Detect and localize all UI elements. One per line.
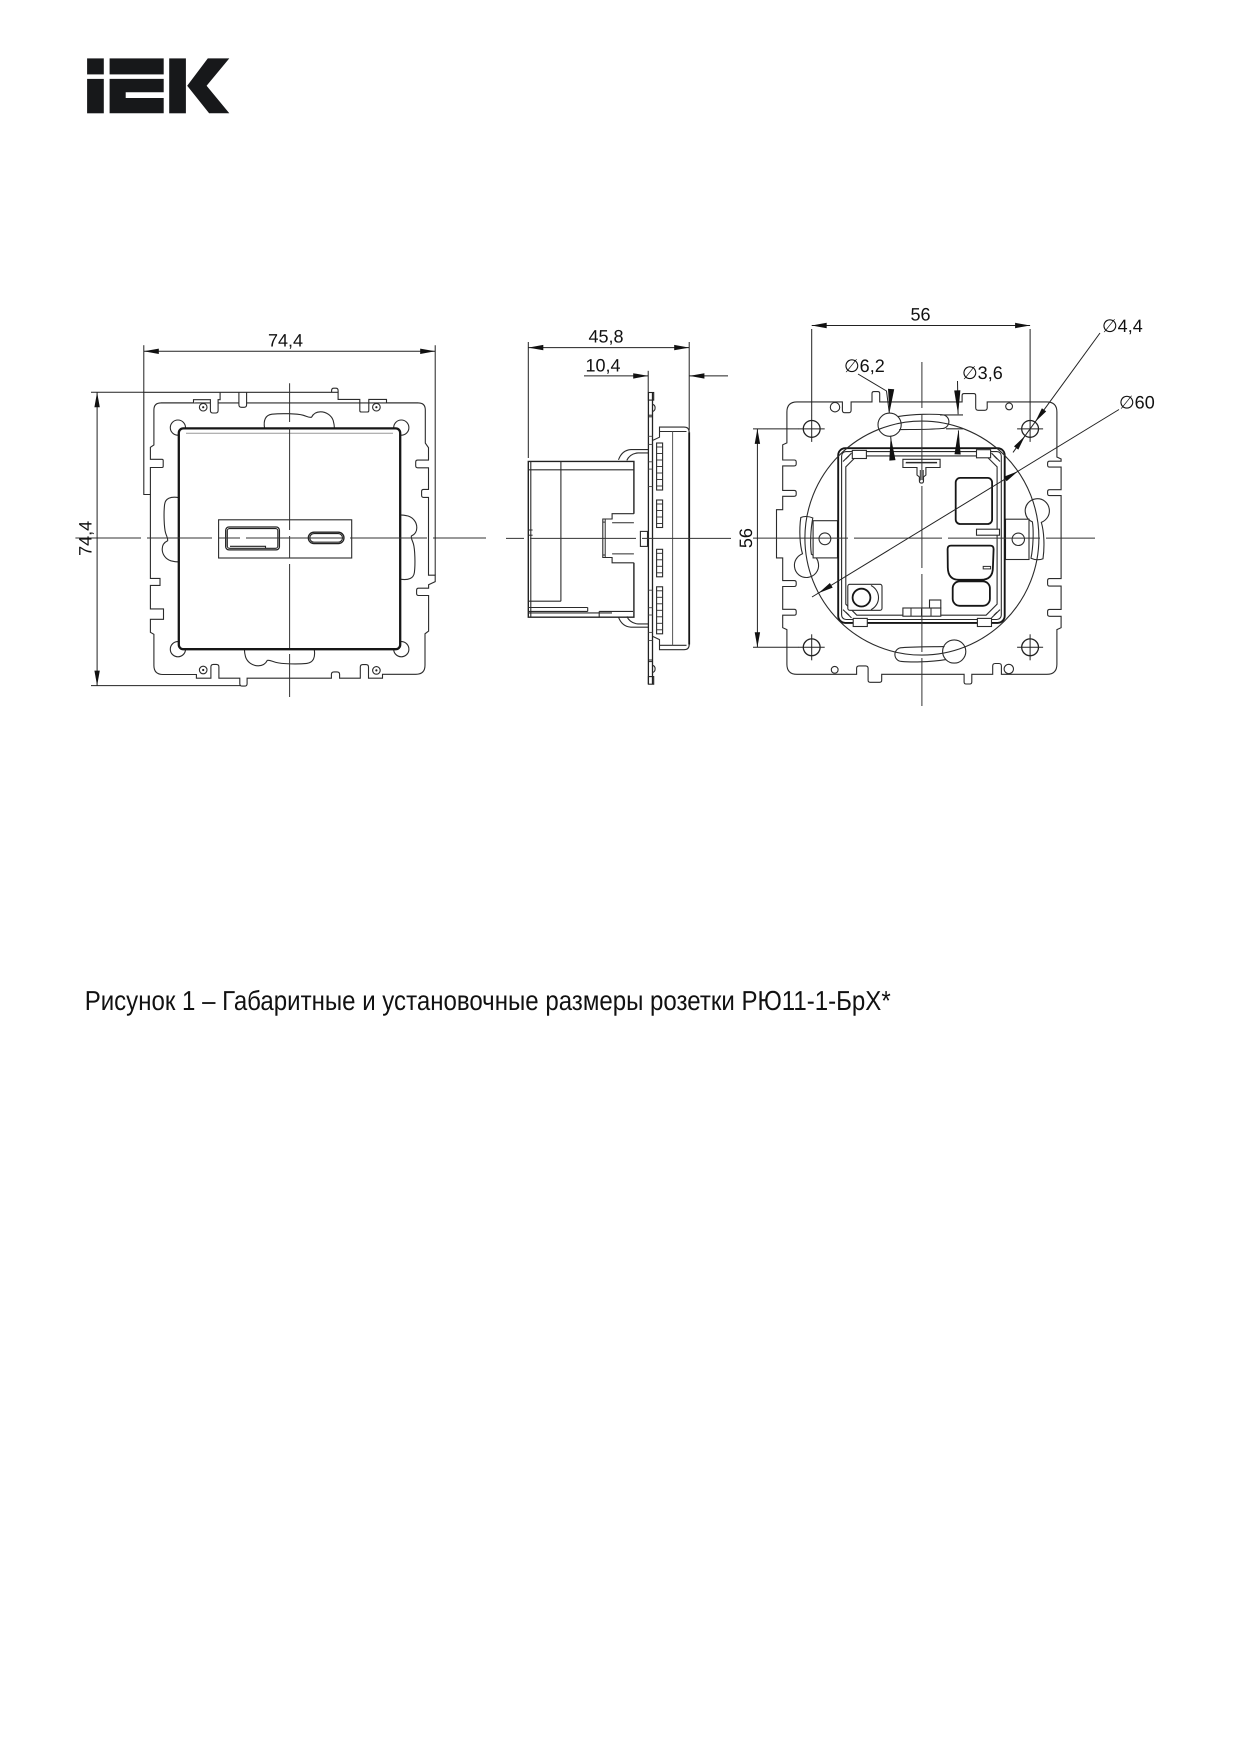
svg-text:Рисунок 1 – Габаритные и устан: Рисунок 1 – Габаритные и установочные ра… (85, 985, 891, 1016)
svg-text:∅6,2: ∅6,2 (844, 356, 885, 376)
svg-text:45,8: 45,8 (588, 327, 623, 347)
svg-text:∅4,4: ∅4,4 (1102, 316, 1143, 336)
svg-text:10,4: 10,4 (585, 355, 620, 375)
svg-text:56: 56 (736, 528, 756, 548)
svg-text:74,4: 74,4 (268, 331, 303, 351)
svg-text:56: 56 (910, 304, 930, 324)
svg-text:74,4: 74,4 (76, 521, 96, 556)
svg-text:∅3,6: ∅3,6 (962, 363, 1003, 383)
svg-text:∅60: ∅60 (1119, 393, 1155, 413)
